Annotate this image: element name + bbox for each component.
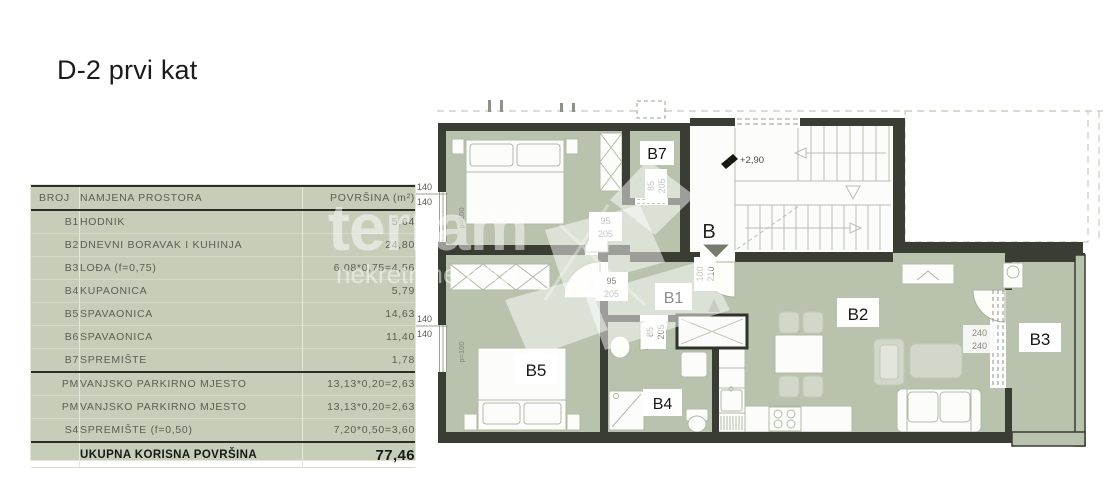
door-dim-95-205-b5: 95 205: [595, 272, 628, 301]
room-label-text: B7: [647, 146, 667, 163]
header-broj: BROJ: [31, 186, 80, 210]
room-area-table: BROJ NAMJENA PROSTORA POVRŠINA (m²) B1 H…: [31, 185, 415, 468]
wardrobe-b6: [600, 133, 622, 191]
bathroom-fixtures: [609, 336, 708, 432]
table-row: S4 SPREMIŠTE (f=0,50) 7,20*0,50=3,60: [31, 419, 415, 443]
dim-text: 205: [598, 229, 613, 239]
cell-name: SPAVAONICA: [80, 303, 303, 326]
room-b5-label: B5: [515, 353, 557, 384]
stairwell: [690, 118, 893, 252]
neighbour-unit-outline: [905, 111, 1088, 242]
kitchen-counter: [718, 348, 852, 432]
stair-letter: B: [702, 221, 715, 243]
loggia-column: [1003, 263, 1023, 288]
dim-text: 85: [645, 327, 655, 337]
loggia-parapet: [1012, 255, 1085, 446]
living-set: [874, 264, 981, 432]
room-b1-label: B1: [655, 283, 692, 310]
cell-id: B5: [31, 303, 80, 326]
cell-id: PM: [31, 372, 80, 396]
door-dim-95-205-b6: 95 205: [589, 212, 622, 241]
room-b3-label: B3: [1019, 323, 1061, 352]
table-header-row: BROJ NAMJENA PROSTORA POVRŠINA (m²): [31, 186, 415, 210]
cell-name: SPREMIŠTE (f=0,50): [80, 419, 303, 443]
cell-id: [31, 442, 80, 468]
tv-stand: [902, 264, 954, 284]
cell-name: LOĐA (f=0,75): [80, 257, 303, 280]
cell-id: S4: [31, 419, 80, 443]
level-marker: +2,90: [721, 154, 764, 169]
table-row: B3 LOĐA (f=0,75) 6,08*0,75=4,56: [31, 257, 415, 280]
cell-id: B4: [31, 280, 80, 303]
table-row: B7 SPREMIŠTE 1,78: [31, 349, 415, 373]
level-text: +2,90: [740, 155, 764, 166]
cell-id: B1: [31, 210, 80, 234]
stair-entry-marker: B: [702, 221, 730, 258]
parapet-dim: p=100: [457, 341, 466, 362]
cell-id: B6: [31, 326, 80, 349]
cell-area: 1,78: [303, 349, 416, 373]
site-boundary-dashed: [437, 111, 1103, 242]
dim-text: 205: [604, 289, 619, 299]
openings: [437, 116, 1006, 388]
dim-text: 240: [972, 328, 987, 338]
table-row: B2 DNEVNI BORAVAK I KUHINJA 24,80: [31, 234, 415, 257]
cell-name: SPREMIŠTE: [80, 349, 303, 373]
room-b2-label: B2: [837, 298, 879, 327]
table-row: B5 SPAVAONICA 14,63: [31, 303, 415, 326]
room-label-text: B3: [1030, 330, 1051, 349]
cell-name: KUPAONICA: [80, 280, 303, 303]
header-povrsina: POVRŠINA (m²): [303, 186, 416, 210]
cell-area: 13,13*0,20=2,63: [303, 372, 416, 396]
dim-140: 140: [417, 182, 432, 192]
cell-area: 24,80: [303, 234, 416, 257]
cell-area: 5,79: [303, 280, 416, 303]
table-row: B1 HODNIK 5,64: [31, 210, 415, 234]
toilet: [686, 409, 708, 421]
cell-id: B7: [31, 349, 80, 373]
door-swings: [564, 200, 1005, 389]
room-b4-label: B4: [643, 389, 682, 416]
dim-140: 140: [417, 314, 432, 324]
window-dim-b5: 140 140: [416, 314, 448, 339]
dim-text: 210: [706, 266, 716, 281]
room-b7-label: B7: [640, 141, 674, 165]
table-row: B6 SPAVAONICA 11,40: [31, 326, 415, 349]
walls: [438, 118, 1085, 443]
room-label-text: B2: [848, 305, 869, 324]
sofa: [897, 389, 981, 432]
stairs: [735, 126, 891, 250]
stove: [769, 407, 801, 431]
cell-area: 11,40: [303, 326, 416, 349]
washer: [681, 352, 707, 377]
dining-set: [775, 312, 823, 397]
parapet-dim: p=100: [457, 207, 466, 228]
chimney-dashed: [637, 101, 665, 118]
dim-140: 140: [417, 197, 432, 207]
shower: [609, 391, 644, 430]
room-label-text: B1: [664, 290, 684, 307]
cell-area: 5,64: [303, 210, 416, 234]
dim-text: 95: [600, 216, 610, 226]
room-label-text: B4: [653, 396, 673, 413]
cell-area: 13,13*0,20=2,63: [303, 396, 416, 419]
cell-name: VANJSKO PARKIRNO MJESTO: [80, 372, 303, 396]
sink: [610, 336, 630, 358]
cell-area: 6,08*0,75=4,56: [303, 257, 416, 280]
cell-name: HODNIK: [80, 210, 303, 234]
dim-140: 140: [417, 329, 432, 339]
cell-name: DNEVNI BORAVAK I KUHINJA: [80, 234, 303, 257]
total-label: UKUPNA KORISNA POVRŠINA: [80, 442, 303, 468]
apartment-fill: [446, 131, 1078, 432]
page-title: D-2 prvi kat: [57, 55, 197, 86]
cell-area: 14,63: [303, 303, 416, 326]
area-table: BROJ NAMJENA PROSTORA POVRŠINA (m²) B1 H…: [30, 184, 416, 461]
bed-b6: [452, 139, 578, 224]
cell-id: B3: [31, 257, 80, 280]
total-value: 77,46: [303, 442, 416, 468]
cell-name: VANJSKO PARKIRNO MJESTO: [80, 396, 303, 419]
upper-wall-stubs: [488, 100, 575, 112]
door-dim-100-210: 100 210: [694, 257, 716, 291]
dim-text: 205: [656, 324, 666, 339]
entrance-arrow: [708, 299, 720, 312]
dim-text: 205: [657, 178, 667, 193]
table-row: PM VANJSKO PARKIRNO MJESTO 13,13*0,20=2,…: [31, 396, 415, 419]
dim-text: 95: [606, 276, 616, 286]
table-row: B4 KUPAONICA 5,79: [31, 280, 415, 303]
bed-b5: [464, 348, 580, 430]
ventilation-shaft: [677, 315, 747, 348]
cell-id: B2: [31, 234, 80, 257]
cell-area: 7,20*0,50=3,60: [303, 419, 416, 443]
dim-text: 85: [646, 181, 656, 191]
door-dim-85-205-b4: 85 205: [644, 315, 666, 349]
cell-name: SPAVAONICA: [80, 326, 303, 349]
header-namjena: NAMJENA PROSTORA: [80, 186, 303, 210]
door-dim-85-205-b7: 85 205: [645, 169, 667, 203]
table-row: PM VANJSKO PARKIRNO MJESTO 13,13*0,20=2,…: [31, 372, 415, 396]
table-total-row: UKUPNA KORISNA POVRŠINA 77,46: [31, 442, 415, 468]
coffee-table: [910, 344, 962, 378]
window-dim-b6: 140 140: [416, 182, 448, 207]
door-dim-240-240: 240 240: [963, 325, 996, 353]
cell-id: PM: [31, 396, 80, 419]
toilet-bowl: [688, 416, 706, 432]
dim-text: 100: [695, 266, 705, 281]
room-label-text: B5: [526, 361, 547, 380]
wardrobe-b5: [450, 264, 550, 290]
armchair: [874, 339, 904, 385]
dim-text: 240: [972, 341, 987, 351]
